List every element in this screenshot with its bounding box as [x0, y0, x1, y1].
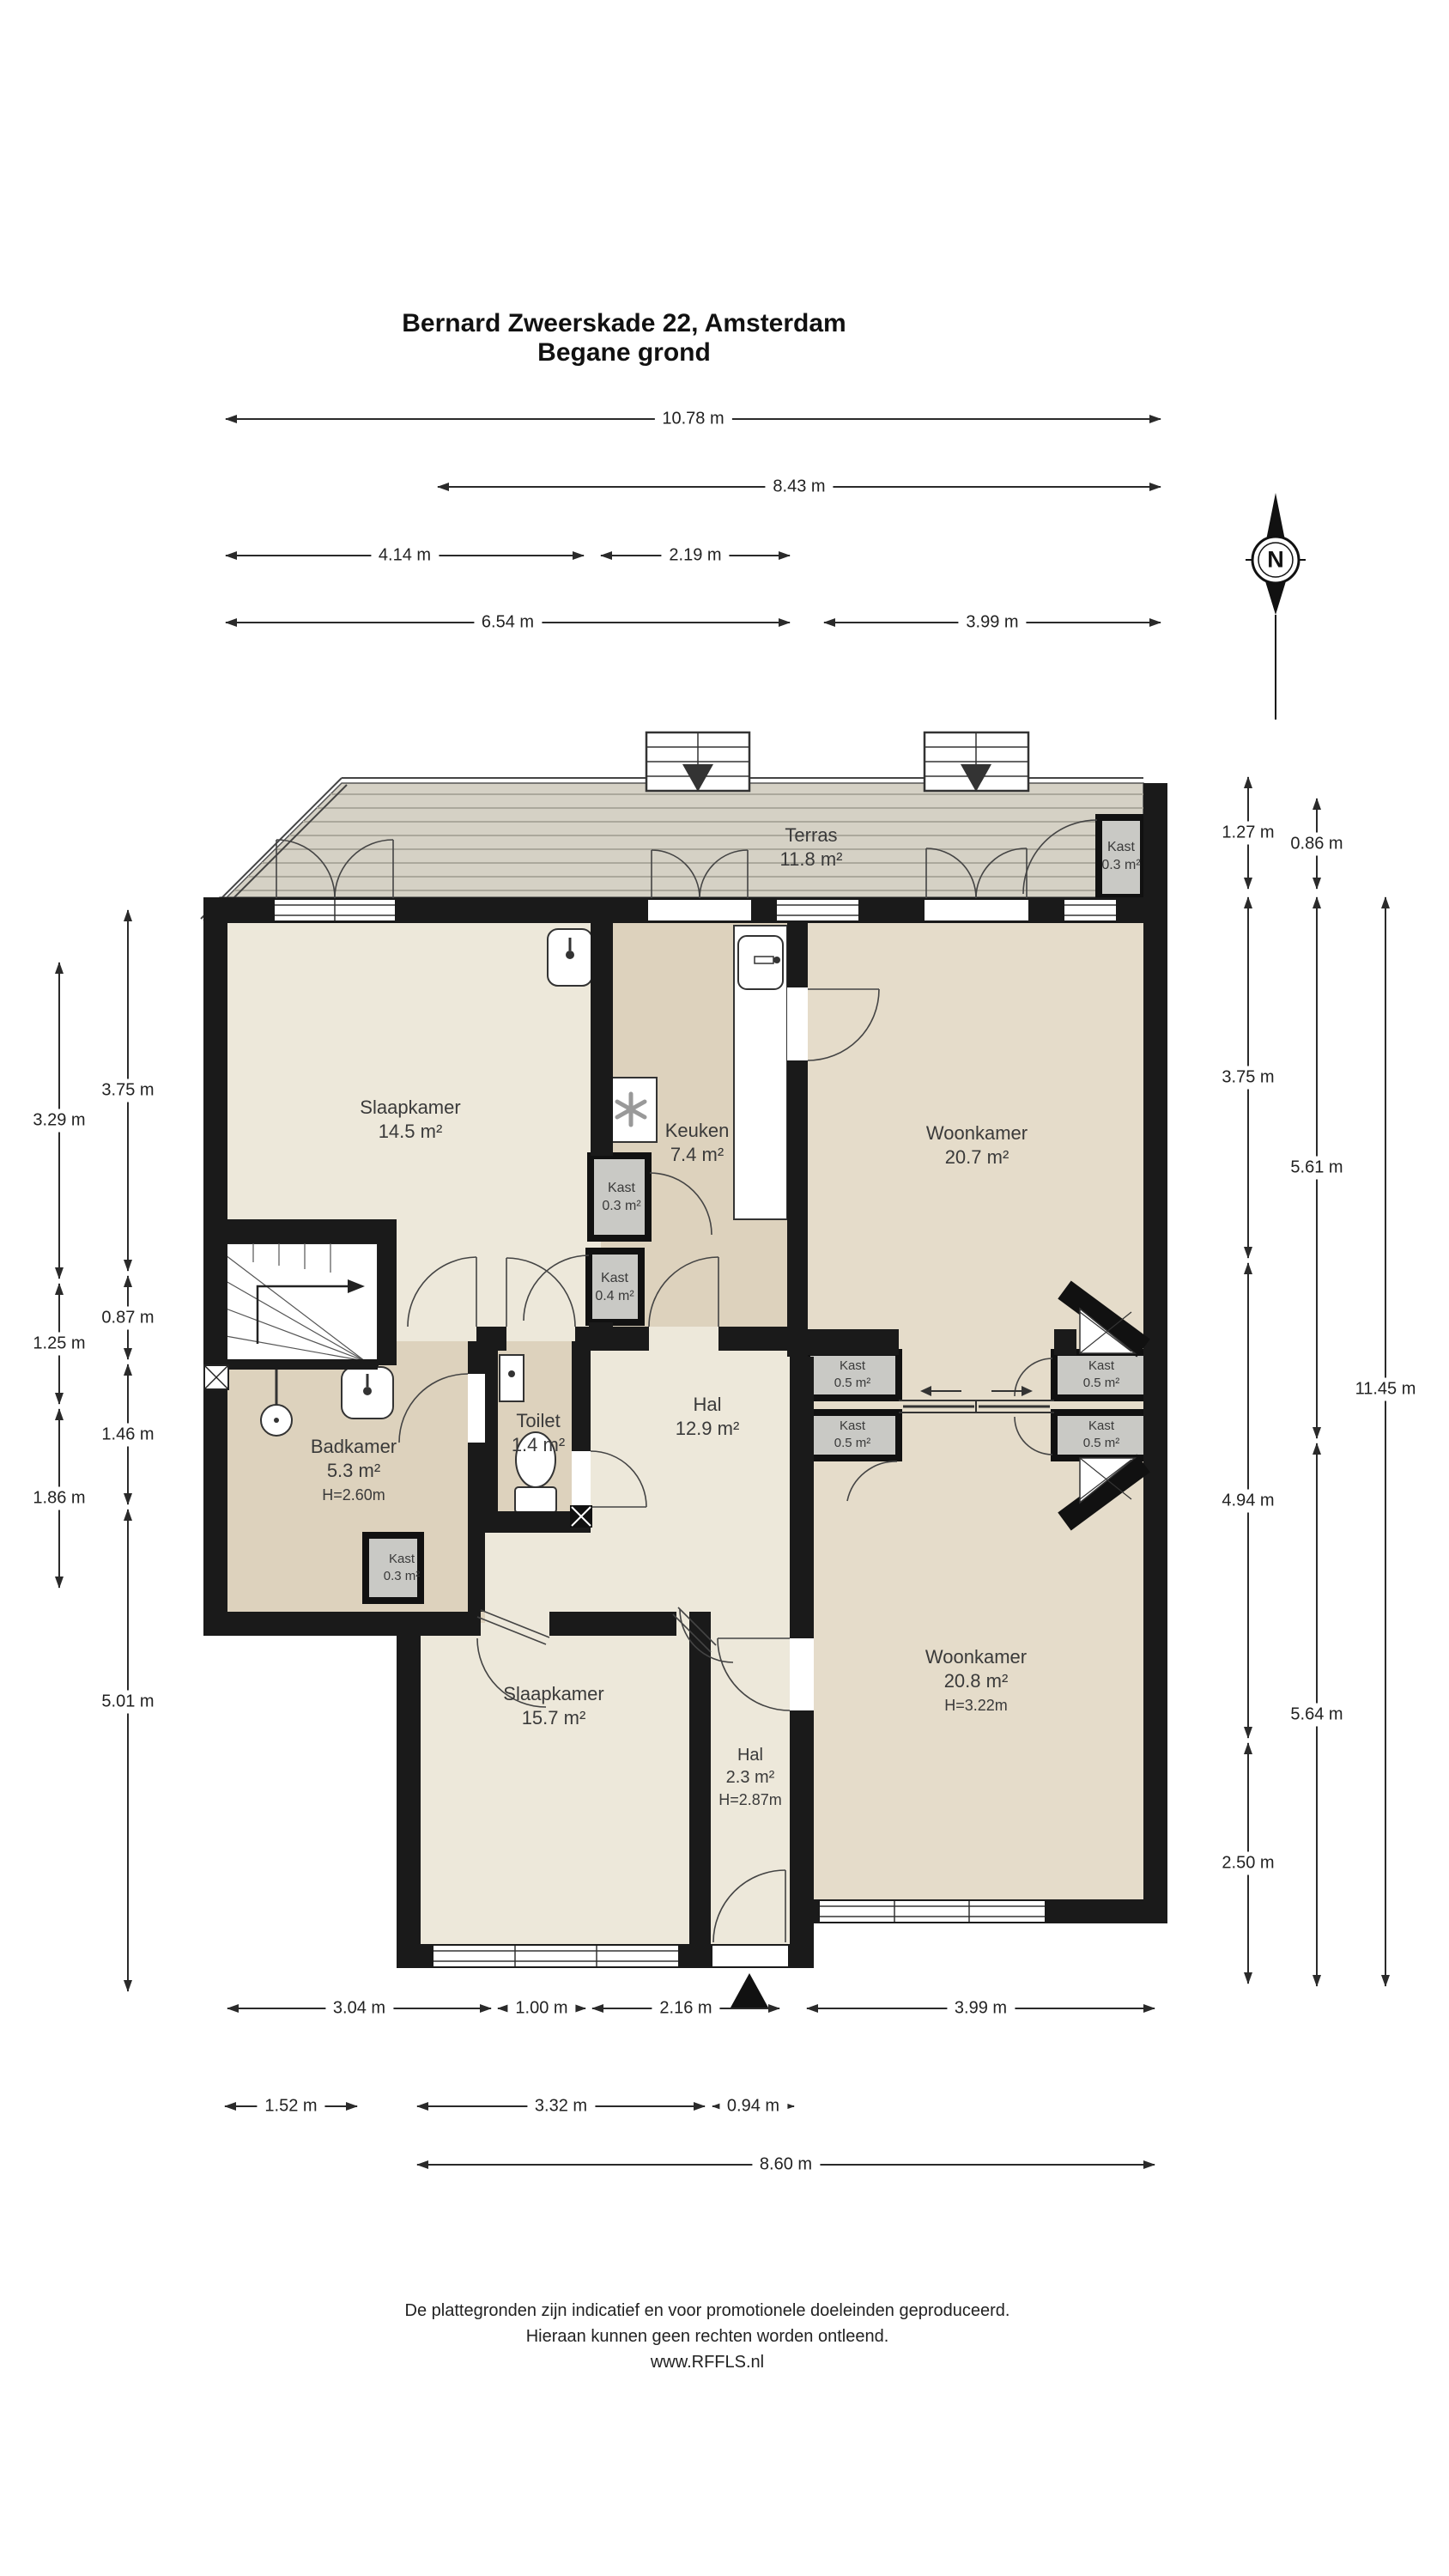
- dim-top-4: 6.54 m: [226, 622, 790, 623]
- dim-left-outer-2: 1.86 m: [58, 1409, 60, 1588]
- dim-top-3: 2.19 m: [601, 555, 790, 556]
- dim-left-outer-0: 3.29 m: [58, 963, 60, 1279]
- compass-label: N: [1267, 547, 1284, 574]
- footer-website: www.RFFLS.nl: [405, 2349, 1010, 2375]
- dim-right-outer-0: 11.45 m: [1385, 897, 1386, 1986]
- dim-bottom-4: 1.52 m: [225, 2105, 357, 2107]
- room-label-toilet: Toilet1.4 m²: [512, 1409, 565, 1457]
- dim-right-inner-2: 4.94 m: [1247, 1263, 1249, 1738]
- dim-bottom-7: 8.60 m: [417, 2164, 1155, 2166]
- floor-plan: [0, 0, 1449, 2576]
- room-slaapkamer2: [408, 1623, 704, 1958]
- room-label-woonkamer2: Woonkamer20.8 m² H=3.22m: [925, 1645, 1027, 1717]
- compass: [1246, 493, 1306, 720]
- dim-bottom-3: 3.99 m: [807, 2008, 1155, 2009]
- room-label-kast-hal: Kast0.4 m²: [595, 1269, 634, 1305]
- room-label-kast-d: Kast0.5 m²: [1083, 1418, 1120, 1452]
- room-label-kast-keuken: Kast0.3 m²: [602, 1179, 640, 1215]
- dim-bottom-0: 3.04 m: [227, 2008, 491, 2009]
- footer-disclaimer: De plattegronden zijn indicatief en voor…: [405, 2298, 1010, 2375]
- room-label-kast-terras: Kast0.3 m²: [1101, 838, 1140, 874]
- dim-left-inner-1: 0.87 m: [127, 1276, 129, 1359]
- dim-left-inner-2: 1.46 m: [127, 1364, 129, 1504]
- dim-bottom-6: 0.94 m: [712, 2105, 794, 2107]
- room-label-slaapkamer1: Slaapkamer14.5 m²: [360, 1096, 460, 1144]
- dim-right-mid-1: 5.61 m: [1316, 897, 1318, 1438]
- dim-right-mid-2: 5.64 m: [1316, 1443, 1318, 1986]
- room-label-badkamer: Badkamer5.3 m² H=2.60m: [311, 1435, 397, 1507]
- room-label-hal1: Hal12.9 m²: [676, 1393, 740, 1441]
- dim-top-0: 10.78 m: [226, 418, 1161, 420]
- kitchen-counter: [734, 926, 787, 1219]
- room-label-woonkamer1: Woonkamer20.7 m²: [926, 1121, 1028, 1170]
- room-label-slaapkamer2: Slaapkamer15.7 m²: [503, 1682, 603, 1730]
- stairwell: [226, 1243, 378, 1365]
- dim-left-outer-1: 1.25 m: [58, 1284, 60, 1404]
- toilet-basin: [500, 1355, 524, 1401]
- dim-top-1: 8.43 m: [438, 486, 1161, 488]
- room-label-kast-a: Kast0.5 m²: [834, 1358, 871, 1392]
- room-label-hal2: Hal2.3 m² H=2.87m: [718, 1744, 782, 1811]
- dim-right-inner-0: 1.27 m: [1247, 777, 1249, 889]
- room-label-kast-b: Kast0.5 m²: [834, 1418, 871, 1452]
- dim-top-5: 3.99 m: [824, 622, 1161, 623]
- bedroom-basin: [548, 929, 592, 986]
- entrance-arrow: [731, 1973, 768, 2008]
- room-label-keuken: Keuken7.4 m²: [665, 1119, 730, 1167]
- dim-left-inner-3: 5.01 m: [127, 1510, 129, 1991]
- floorplan-page: Bernard Zweerskade 22, Amsterdam Begane …: [0, 0, 1449, 2576]
- room-label-kast-badkamer: Kast0.3 m²: [384, 1551, 421, 1585]
- dim-bottom-2: 2.16 m: [592, 2008, 779, 2009]
- room-label-kast-c: Kast0.5 m²: [1083, 1358, 1120, 1392]
- dim-top-2: 4.14 m: [226, 555, 584, 556]
- dim-bottom-1: 1.00 m: [498, 2008, 585, 2009]
- wc-icon: [515, 1487, 556, 1513]
- dim-right-mid-0: 0.86 m: [1316, 799, 1318, 889]
- dim-right-inner-1: 3.75 m: [1247, 897, 1249, 1258]
- dim-left-inner-0: 3.75 m: [127, 910, 129, 1271]
- dim-right-inner-3: 2.50 m: [1247, 1743, 1249, 1984]
- dim-bottom-5: 3.32 m: [417, 2105, 705, 2107]
- room-label-terras: Terras11.8 m²: [780, 823, 843, 872]
